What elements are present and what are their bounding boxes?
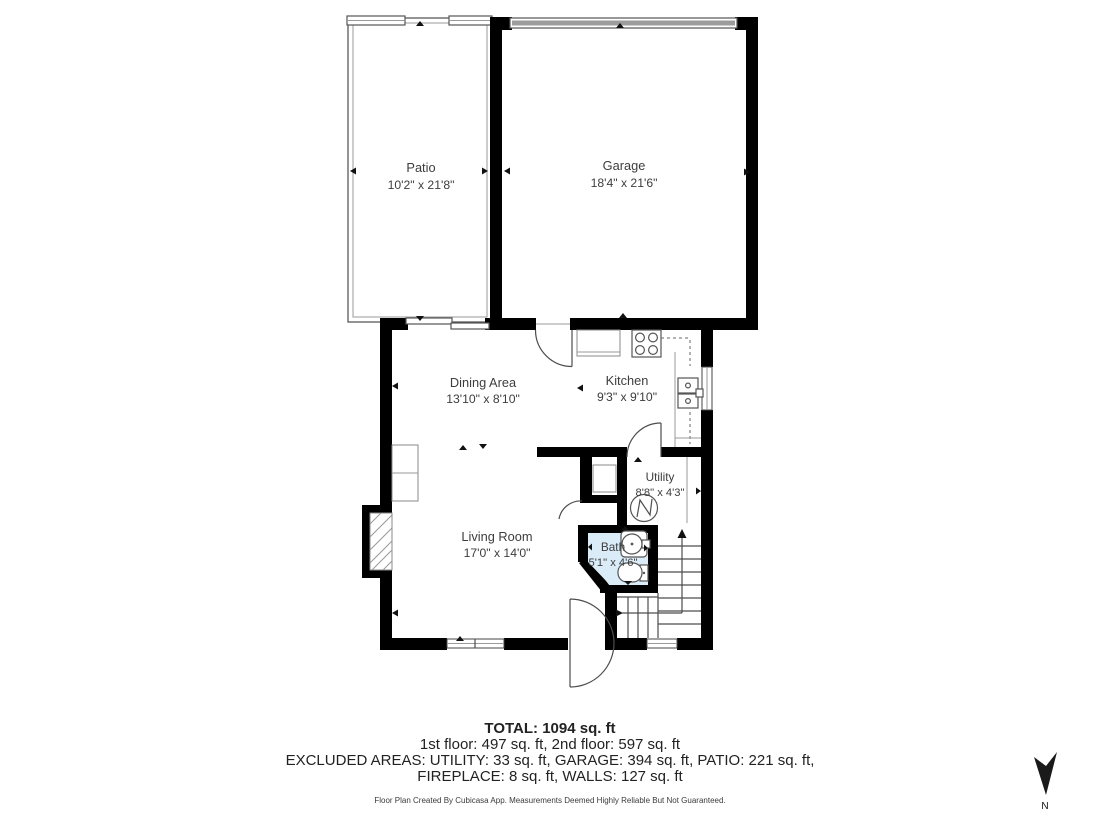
north-arrow-icon [1034,752,1057,795]
dimension-marker [634,457,642,462]
dining-label: Dining Area [450,375,517,390]
garage-bottom-wall [570,318,758,330]
utility-dims: 8'8" x 4'3" [636,487,685,499]
garage-right-wall [746,17,758,330]
bottom-wall [504,638,568,650]
garage-entry-door [536,330,573,367]
garage-top-wall [735,17,758,30]
stair-treads-upper [658,546,701,624]
summary-disclaimer: Floor Plan Created By Cubicasa App. Meas… [374,796,725,805]
left-wall [380,330,392,513]
right-wall [701,330,713,367]
garage-dims: 18'4" x 21'6" [591,176,658,190]
dimension-marker [577,385,583,392]
garage-bottom-wall [490,318,536,330]
bath-right-wall [648,525,658,593]
garage-left-wall [490,17,502,330]
floorplan-page: Patio 10'2" x 21'8" Garage 18'4" x 21'6"… [0,0,1100,825]
summary-excluded-2: FIREPLACE: 8 sq. ft, WALLS: 127 sq. ft [417,768,683,785]
dimension-marker [696,488,701,495]
compass: N [1034,752,1057,812]
top-wall [380,318,408,330]
closet-door [559,501,582,519]
garage-label: Garage [603,158,646,173]
dining-dims: 13'10" x 8'10" [446,392,520,406]
dining-utility-wall [537,447,627,457]
patio-label: Patio [406,160,435,175]
dimension-marker [619,313,627,318]
windows [447,367,712,648]
dimension-marker [479,444,487,449]
fireplace-wall [362,570,392,578]
washer-icon [593,465,616,492]
summary-floors: 1st floor: 497 sq. ft, 2nd floor: 597 sq… [420,736,681,753]
entry-wall [605,593,617,638]
kitchen-dims: 9'3" x 9'10" [597,390,657,404]
dimension-markers [350,21,750,641]
living-dims: 17'0" x 14'0" [464,546,531,560]
kitchen-label: Kitchen [606,373,649,388]
bath-sink-icon [621,531,650,557]
refrigerator-icon [577,330,620,356]
living-label: Living Room [461,529,532,544]
window [447,639,504,648]
dimension-marker [392,383,398,390]
cabinet-icon [392,445,418,501]
dimension-marker [392,610,398,617]
bottom-wall [380,638,447,650]
fireplace-wall [362,505,370,578]
bottom-wall [605,638,647,650]
fireplace-icon [370,513,392,570]
stair-treads-lower [617,597,658,638]
sliding-door-panel [451,323,489,329]
utility-top-wall [661,447,701,457]
sliding-door-panel [406,318,452,324]
stove-icon [632,330,661,357]
bath-dims: 5'1" x 4'6" [589,557,638,569]
bath-label: Bath [601,540,625,554]
kitchen-sink-icon [678,378,703,408]
summary-block: TOTAL: 1094 sq. ft 1st floor: 497 sq. ft… [286,720,815,805]
closet-left-wall [580,457,592,497]
kitchen-fixtures [577,330,703,447]
garage-door-band [512,21,735,26]
right-wall [701,410,713,650]
garage-room [490,17,758,330]
dimension-marker [504,168,510,175]
north-label: N [1041,801,1048,812]
summary-total: TOTAL: 1094 sq. ft [484,720,615,737]
utility-label: Utility [646,470,675,484]
closet-right-wall [617,457,627,525]
window [647,639,677,648]
dimension-marker [459,445,467,450]
utility-door [627,423,661,457]
garage-top-wall [490,17,512,30]
summary-excluded-1: EXCLUDED AREAS: UTILITY: 33 sq. ft, GARA… [286,752,815,769]
floorplan-drawing: Patio 10'2" x 21'8" Garage 18'4" x 21'6"… [0,0,1100,825]
patio-dims: 10'2" x 21'8" [388,178,455,192]
